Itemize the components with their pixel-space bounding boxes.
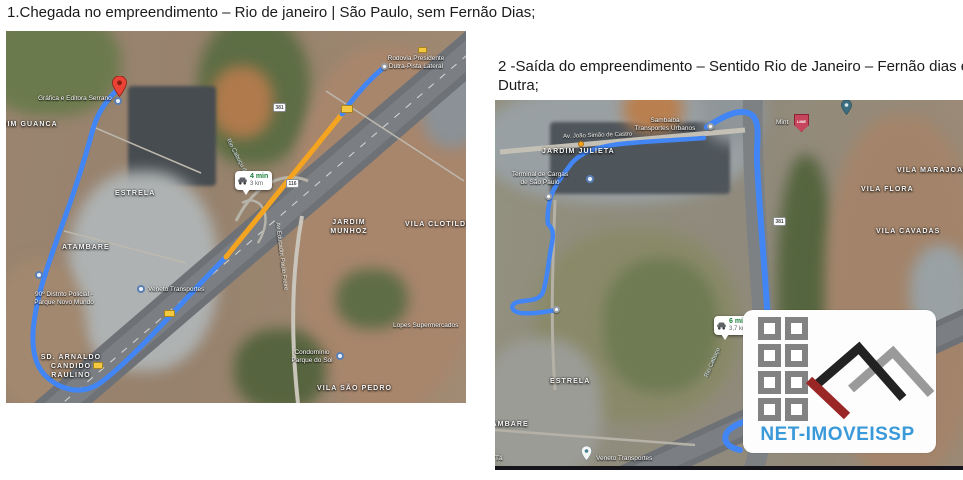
document-page: { "page": { "title1": "1.Chegada no empr… xyxy=(0,0,963,480)
district-label-munhoz: JARDIM MUNHOZ xyxy=(316,218,382,236)
car-icon xyxy=(717,322,726,330)
district-label-atambare: ATAMBARE xyxy=(62,244,110,251)
district-label-estrela: ESTRELA xyxy=(115,190,155,197)
district-label-estrela: ESTRELA xyxy=(550,378,590,385)
poi-label-veneto: Veneto Transportes xyxy=(148,286,204,293)
toll-shield-icon xyxy=(93,362,103,369)
road-label-dutra-line2: Dutra-Pista Lateral xyxy=(366,63,466,71)
mint-marker-text: LINE xyxy=(797,119,806,124)
eta-distance: 3 km xyxy=(250,181,268,188)
eta-bubble-tail xyxy=(721,334,729,340)
route-waypoint-dot xyxy=(545,193,552,200)
district-label-munhoz-line1: JARDIM xyxy=(316,218,382,227)
logo-building-window xyxy=(758,317,781,340)
logo-brand-text: NET-IMOVEISSP xyxy=(743,424,932,446)
page-title-departure-line1: 2 -Saída do empreendimento – Sentido Rio… xyxy=(498,58,963,75)
police-poi-icon xyxy=(35,271,43,279)
poi-label-terminal-line2: de São Paulo xyxy=(495,179,585,187)
district-label-flora: VILA FLORA xyxy=(861,186,914,193)
terminal-poi-icon xyxy=(586,175,594,183)
district-label-arnaldo-line1: SD. ARNALDO xyxy=(31,353,111,362)
eta-time: 4 min xyxy=(250,173,268,181)
district-label-munhoz-line2: MUNHOZ xyxy=(316,227,382,236)
destination-pin-icon xyxy=(112,76,127,97)
page-title-arrival: 1.Chegada no empreendimento – Rio de jan… xyxy=(7,4,535,21)
poi-label-lopes: Lopes Supermercados xyxy=(393,322,458,329)
transport-poi-icon xyxy=(137,285,145,293)
highway-shield-116: 116 xyxy=(286,179,299,188)
district-label-clotilde: VILA CLOTILDE xyxy=(405,221,466,228)
eta-bubble-tail xyxy=(242,189,250,195)
toll-shield-icon xyxy=(164,310,175,317)
poi-label-police-line2: Parque Novo Mundo xyxy=(14,299,114,307)
logo-building-icon xyxy=(758,317,808,421)
toll-shield-icon xyxy=(418,47,427,53)
poi-label-condominio: Condomínio Parque do Sol xyxy=(284,349,340,366)
map1-route-overlay xyxy=(6,31,466,403)
map2-bottom-border xyxy=(495,466,963,470)
poi-label-condominio-line2: Parque do Sol xyxy=(284,357,340,365)
logo-building-window xyxy=(758,344,781,367)
toll-shield-icon xyxy=(341,105,353,113)
eta-bubble-map1: 4 min 3 km xyxy=(235,171,272,190)
label-fragment: Tá xyxy=(495,455,503,462)
business-poi-icon xyxy=(114,97,122,105)
map1-satellite-image: Gráfica e Editora Serrano JARDIM GUANCA … xyxy=(6,31,466,403)
poi-label-mint: Mint xyxy=(776,119,788,126)
logo-building-window xyxy=(758,398,781,421)
district-label-sao-pedro: VILA SÃO PEDRO xyxy=(317,385,392,392)
district-label-atambare: ATAMBARE xyxy=(495,421,529,428)
poi-label-terminal: Terminal de Cargas de São Paulo xyxy=(495,171,585,188)
julieta-marker-icon xyxy=(578,141,584,147)
poi-label-police: 90º Distrito Policial - Parque Novo Mund… xyxy=(14,291,114,308)
logo-building-window xyxy=(758,371,781,394)
poi-label-veneto: Veneto Transportes xyxy=(596,455,652,462)
veneto-pin-icon xyxy=(581,446,592,461)
logo-roof-icon xyxy=(805,332,935,424)
poi-label-grafica: Gráfica e Editora Serrano xyxy=(38,95,112,102)
road-label-dutra: Rodovia Presidente Dutra-Pista Lateral xyxy=(366,55,466,72)
district-label-marajoara: VILA MARAJOARA xyxy=(897,167,963,174)
netimoveis-logo: NET-IMOVEISSP xyxy=(743,310,936,453)
district-label-jardim-guanca: JARDIM GUANCA xyxy=(6,121,58,128)
district-label-arnaldo-line3: RAULINO xyxy=(31,371,111,380)
teal-pin-icon xyxy=(841,100,852,115)
district-label-cavadas: VILA CAVADAS xyxy=(876,228,940,235)
highway-shield-381: 381 xyxy=(773,217,786,226)
page-title-departure-line2: Dutra; xyxy=(498,77,539,94)
route-endpoint-dot xyxy=(553,306,560,313)
highway-shield-381: 381 xyxy=(273,103,286,112)
district-label-julieta: JARDIM JULIETA xyxy=(542,148,615,155)
car-icon xyxy=(238,177,247,185)
